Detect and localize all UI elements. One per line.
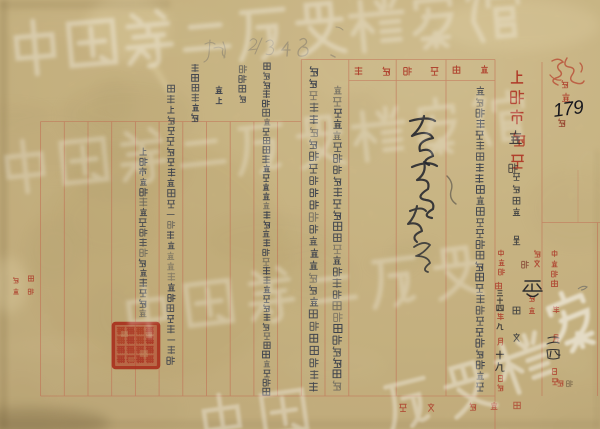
- svg-text:179: 179: [552, 97, 586, 122]
